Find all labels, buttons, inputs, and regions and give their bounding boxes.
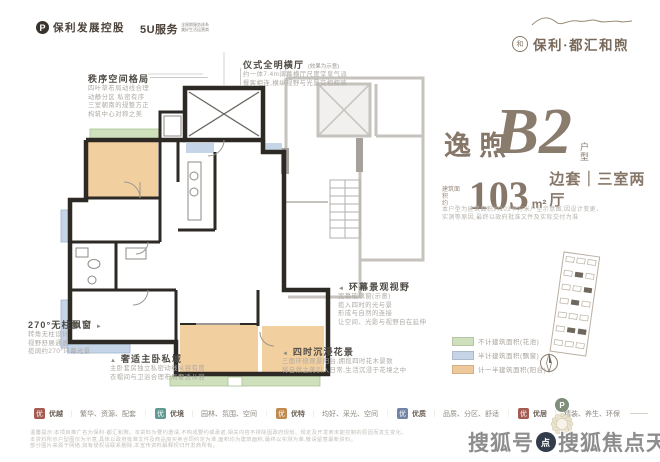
elevator-icon [189, 92, 259, 136]
project-emblem-icon: 和 [512, 36, 528, 52]
legend-swatch-orange [452, 365, 474, 374]
room-tints [88, 142, 324, 372]
legend-swatch-green [452, 337, 474, 346]
project-logo: 和 保利·都汇和煦 [512, 34, 629, 54]
service-icon: 优 [397, 408, 408, 419]
service-icon: 优 [155, 408, 166, 419]
service-icon: 优 [34, 408, 45, 419]
unit-code-suffix: 户型 [580, 142, 590, 162]
divider-line [630, 413, 648, 414]
unit-note: 本户型为建筑面积约103平方米户型示意图,因设计变更、 实测等原因,最终以政府批… [442, 206, 642, 222]
key-plan [540, 248, 630, 360]
developer-logo: P 保利发展控股 [36, 20, 125, 35]
annotation-garden: ◄ 四时沉浸花景 三面环绕观景阳台,拥揽四时花木景致 将自然之美引入日常,生活沉… [282, 345, 442, 375]
svg-text:P: P [559, 401, 565, 410]
service-icon: 优 [518, 408, 529, 419]
annotation-title: 奢适主卧私域 [121, 354, 182, 364]
annotation-title: 环幕景观视野 [349, 282, 410, 292]
annotation-title: 270°无柱飘窗 [28, 320, 92, 330]
arrow-left-icon: ◄ [338, 286, 345, 292]
legend-swatch-blue [452, 351, 474, 360]
annotation-view: ◄ 环幕景观视野 宽幕玻璃窗(示意) 揽入四时的光与景 形成与自然的连接 让空间… [338, 280, 453, 327]
stairs-icon [330, 180, 360, 238]
annotation-suffix: (效果为示意) [308, 64, 339, 70]
poly-logo-icon: P [36, 21, 49, 34]
fine-print: 温馨提示:本项目推广名为保利·都汇和煦。本资料为要约邀请,不构成要约或承诺,相关… [30, 430, 460, 450]
annotation-hall: 仪式全明横厅 (效果为示意) 约一体7.4m阔幕横厅尺度堂皇气派 餐客相连,横纵… [243, 58, 423, 88]
service-icon: 优 [276, 408, 287, 419]
service-brand-logo: 5U服务 全周期服务体系 美好生活运营商 [140, 21, 209, 37]
sohu-focus-badge-icon: 点 [536, 432, 556, 452]
legend-item: 计一半建筑面积(阳台) [452, 364, 546, 374]
entry-bay [186, 143, 214, 153]
annotation-title: 四时沉浸花景 [293, 347, 354, 357]
unit-code: B2 [495, 102, 572, 162]
arrow-left-icon: ◄ [282, 351, 289, 357]
annotation-master: ▲ 奢适主卧私域 主卧套房独立私密动线从容有度 衣帽间与卫浴合理布局奢适从容 [110, 352, 280, 382]
watermark-suffix: 搜狐焦点天门站 [558, 427, 660, 457]
neighbor-wall-fills [281, 138, 363, 174]
watermark: 搜狐号 点 搜狐焦点天门站 [468, 427, 660, 457]
bedroom2-balcony [88, 142, 158, 198]
developer-name: 保利发展控股 [53, 20, 125, 35]
arrow-right-icon: ► [96, 324, 103, 330]
legend: 不计建筑面积(花池) 半计建筑面积(飘窗) 计一半建筑面积(阳台) [452, 336, 546, 378]
watermark-prefix: 搜狐号 [468, 427, 534, 457]
annotation-title: 仪式全明横厅 [243, 60, 304, 70]
service-brand-subtext: 全周期服务体系 美好生活运营商 [181, 21, 209, 32]
leader-line [150, 77, 208, 78]
script-flourish-icon [528, 13, 638, 31]
annotation-baywindow: 270°无柱飘窗 ► 转角无柱设计 视野舒展通透 揽阔约270°环幕光景 [28, 318, 120, 357]
annotation-title: 秩序空间格局 [88, 72, 193, 85]
leader-line [240, 68, 241, 86]
legend-item: 半计建筑面积(飘窗) [452, 350, 546, 360]
arrow-up-icon: ▲ [110, 358, 117, 364]
annotation-order: 秩序空间格局 四叶草布局动线合理 动静分区 私密有序 三室朝南的规整方正 构筑中… [88, 72, 193, 119]
legend-item: 不计建筑面积(花池) [452, 336, 546, 346]
floorplan-poster: P 保利发展控股 5U服务 全周期服务体系 美好生活运营商 和 保利·都汇和煦 [0, 0, 660, 462]
service-brand-name: 5U服务 [140, 21, 178, 37]
project-name: 保利·都汇和煦 [533, 34, 629, 54]
